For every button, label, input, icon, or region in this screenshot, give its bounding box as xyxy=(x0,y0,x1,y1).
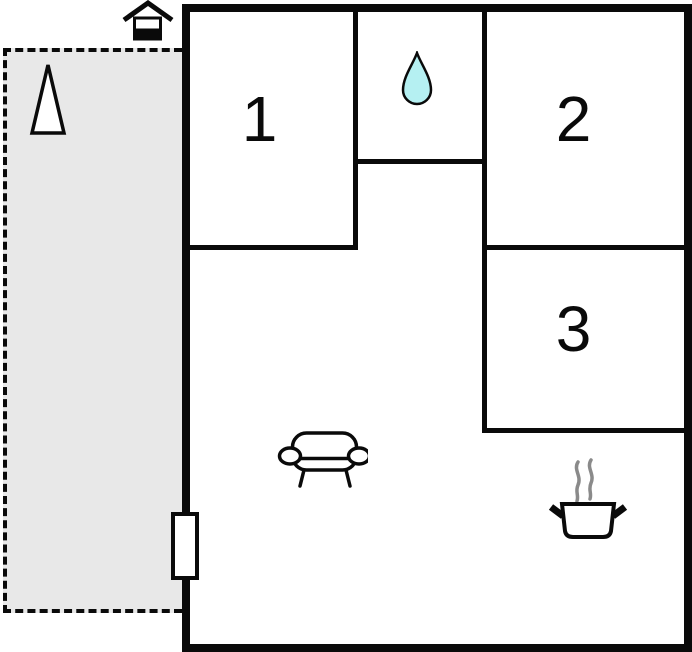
room-1-label: 1 xyxy=(242,87,278,151)
wall-room1-right xyxy=(353,12,358,248)
floor-plan: 1 2 3 xyxy=(0,0,692,652)
wall-bathroom-bottom xyxy=(355,159,487,164)
water-drop-icon xyxy=(400,51,434,108)
wall-room3-bottom xyxy=(482,428,686,433)
sofa-icon xyxy=(277,430,368,488)
room-1: 1 xyxy=(190,12,353,245)
steam-icon xyxy=(589,460,592,499)
house-icon xyxy=(119,0,177,45)
room-3-label: 3 xyxy=(556,297,592,361)
room-3: 3 xyxy=(487,250,684,428)
steam-icon xyxy=(576,462,579,501)
cooking-pot-icon xyxy=(548,458,628,540)
wall-room1-bottom xyxy=(188,245,358,250)
room-2: 2 xyxy=(487,12,684,245)
tree-icon xyxy=(28,61,68,137)
door xyxy=(171,512,199,580)
room-2-label: 2 xyxy=(556,87,592,151)
